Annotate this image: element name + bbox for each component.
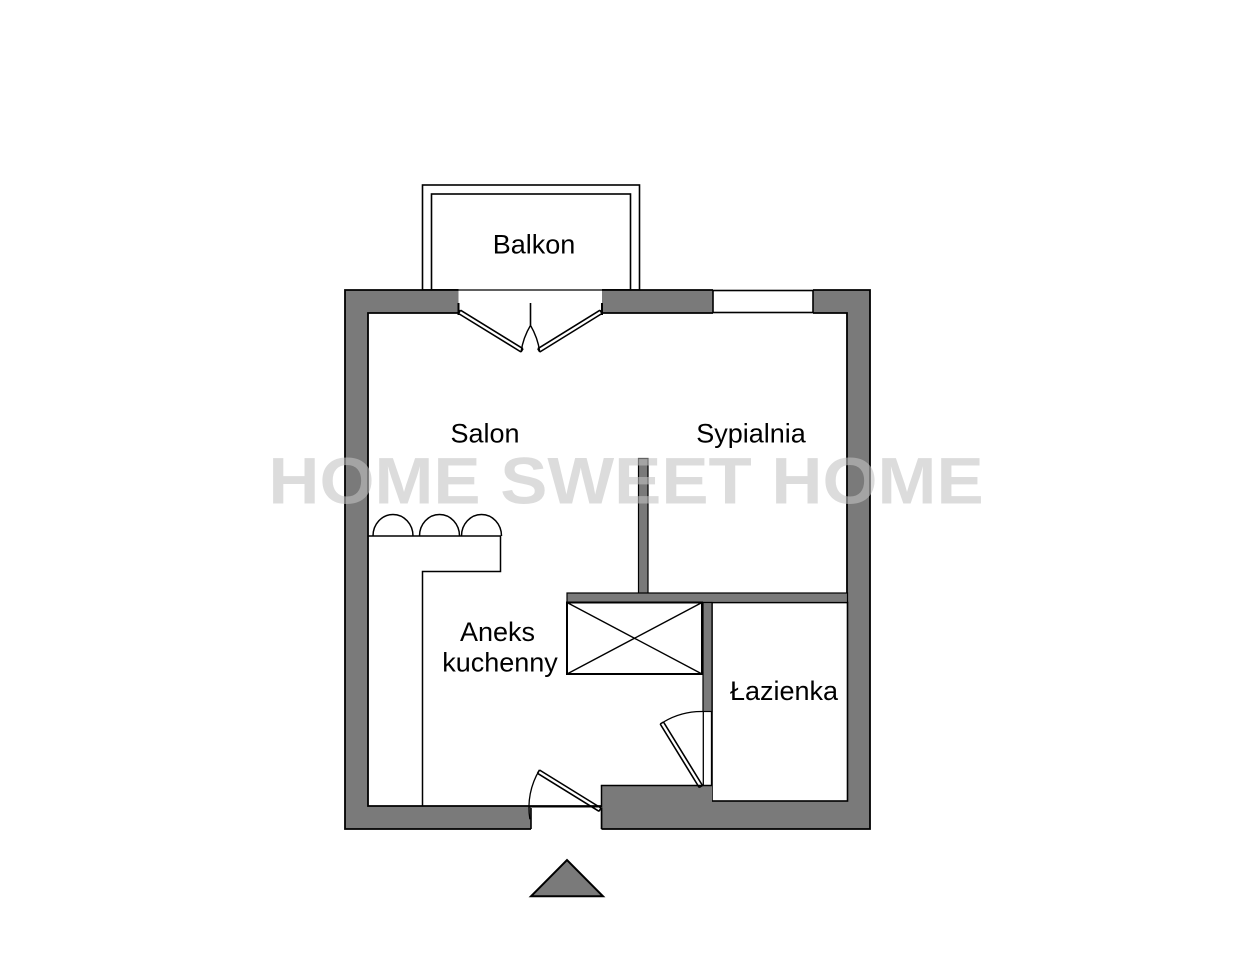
svg-text:Sypialnia: Sypialnia xyxy=(696,419,807,449)
svg-text:Balkon: Balkon xyxy=(493,230,576,260)
svg-text:Aneks: Aneks xyxy=(460,617,535,647)
svg-text:HOME SWEET HOME: HOME SWEET HOME xyxy=(268,445,983,518)
svg-text:Salon: Salon xyxy=(450,419,519,449)
svg-text:Łazienka: Łazienka xyxy=(730,676,839,706)
svg-text:kuchenny: kuchenny xyxy=(442,648,558,678)
